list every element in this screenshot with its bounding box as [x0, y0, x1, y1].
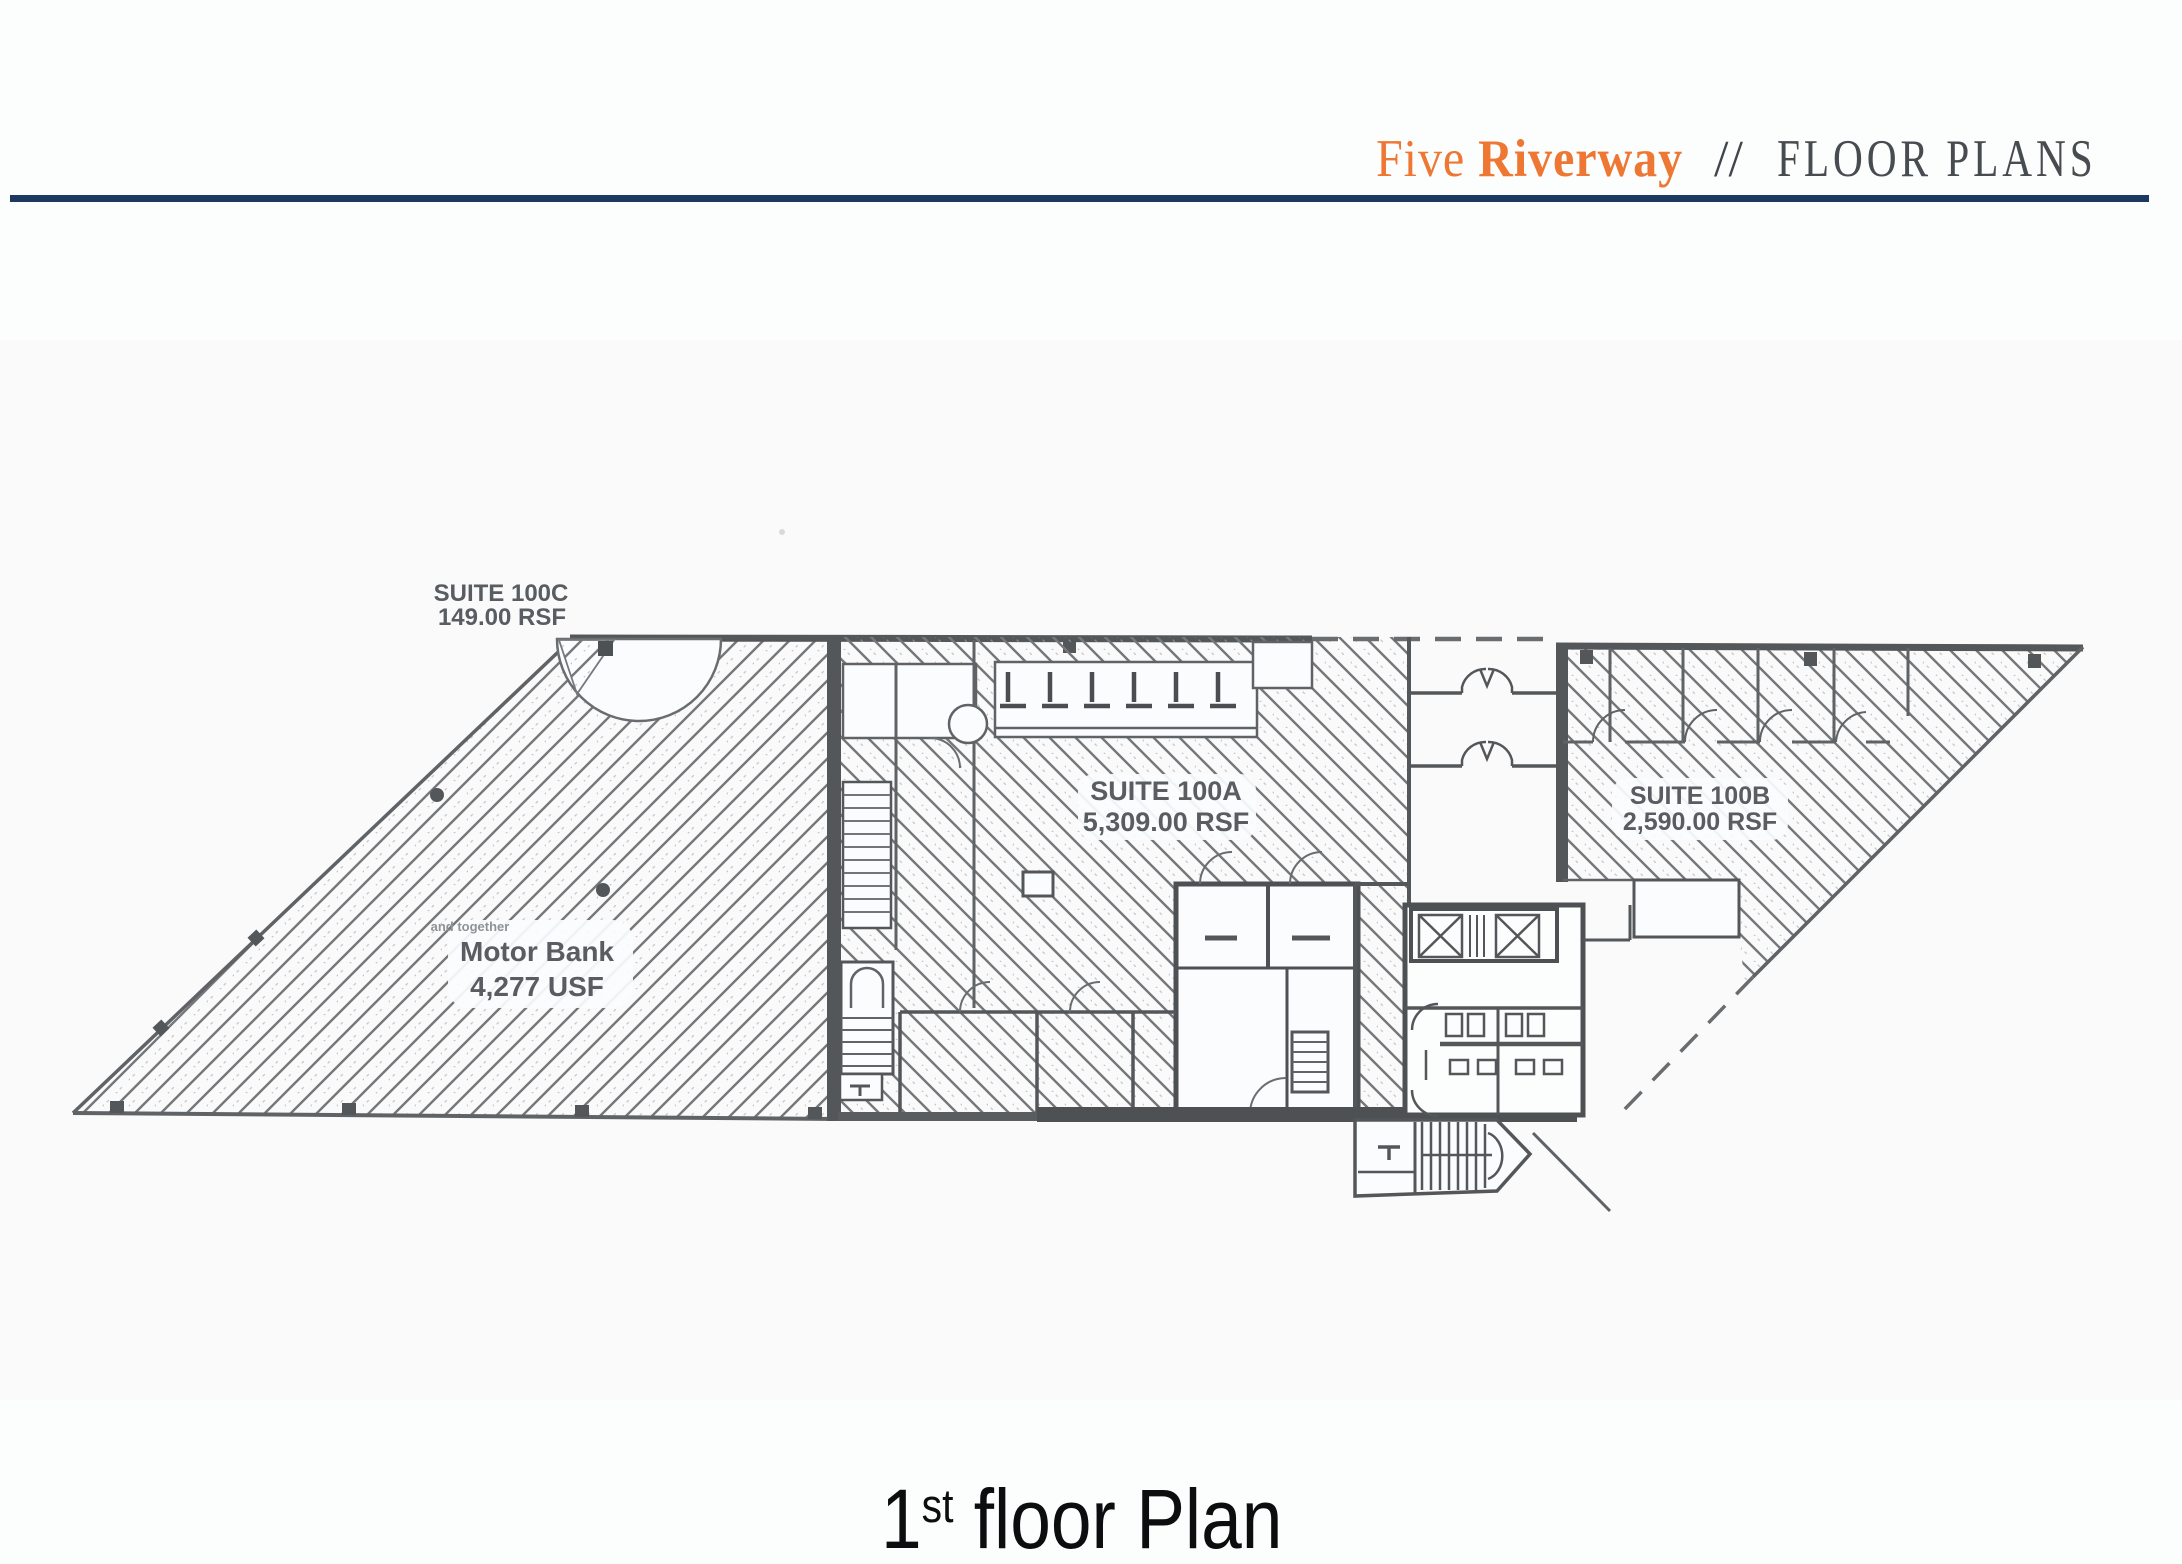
svg-text:5,309.00 RSF: 5,309.00 RSF — [1083, 807, 1250, 837]
svg-text:149.00 RSF: 149.00 RSF — [438, 604, 566, 631]
svg-text:4,277 USF: 4,277 USF — [470, 971, 604, 1002]
svg-text:Motor Bank: Motor Bank — [460, 936, 614, 967]
svg-text:and together: and together — [431, 919, 510, 934]
svg-text:SUITE 100A: SUITE 100A — [1090, 776, 1242, 806]
svg-text:SUITE 100B: SUITE 100B — [1630, 782, 1770, 810]
svg-text:SUITE 100C: SUITE 100C — [434, 580, 569, 607]
svg-text://: // — [1714, 131, 1743, 188]
svg-text:2,590.00 RSF: 2,590.00 RSF — [1623, 808, 1777, 836]
svg-text:1st floor Plan: 1st floor Plan — [881, 1472, 1282, 1564]
svg-text:FLOOR PLANS: FLOOR PLANS — [1777, 130, 2097, 188]
svg-text:Five Riverway: Five Riverway — [1376, 129, 1683, 188]
